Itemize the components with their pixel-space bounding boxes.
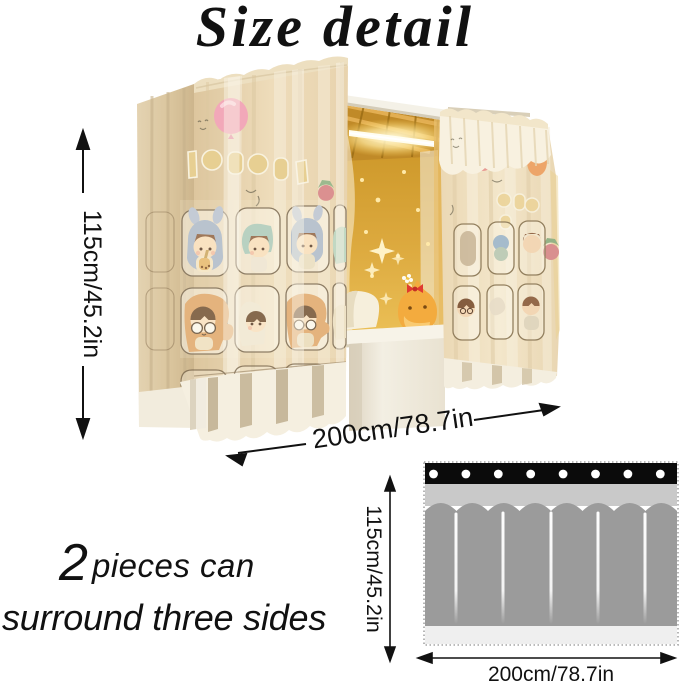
svg-text:115cm/45.2in: 115cm/45.2in: [78, 210, 106, 358]
svg-text:Size detail: Size detail: [196, 0, 474, 59]
svg-text:200cm/78.7in: 200cm/78.7in: [488, 663, 614, 685]
svg-text:surround three sides: surround three sides: [2, 597, 326, 638]
svg-text:115cm/45.2in: 115cm/45.2in: [362, 505, 386, 633]
svg-text:2: 2: [58, 534, 88, 592]
svg-text:pieces can: pieces can: [91, 547, 255, 584]
